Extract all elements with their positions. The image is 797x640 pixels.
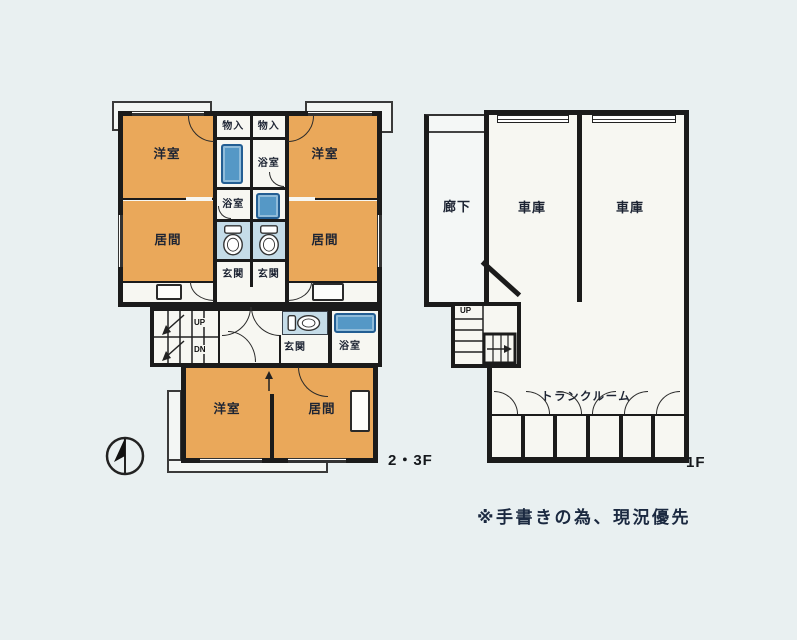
stairs-down-label: DN	[193, 345, 207, 354]
trunk-compartment	[525, 416, 554, 457]
toilet-cell	[250, 222, 286, 259]
bathtub-icon	[256, 193, 280, 219]
partition-wall	[577, 115, 582, 302]
partition-line	[279, 335, 281, 363]
entrance-row: 玄関 玄関	[217, 262, 285, 287]
trunk-compartment	[590, 416, 619, 457]
stairs-up-label: UP	[459, 306, 472, 315]
toilet-icon	[286, 313, 324, 333]
floor-label-2-3f: 2・3F	[388, 453, 433, 468]
window-mark	[200, 458, 262, 463]
trunk-room-compartments	[492, 414, 684, 457]
bath-row-2: 浴室	[217, 190, 285, 222]
entrance-cell: 玄関	[217, 262, 250, 287]
partition-wall	[328, 311, 332, 363]
garage-label: 車庫	[505, 201, 559, 214]
window-mark	[308, 111, 372, 116]
bathtub-icon	[334, 313, 376, 333]
toilet-row	[217, 222, 285, 262]
open-area-upper	[516, 302, 689, 369]
storage-cell: 物入	[250, 116, 286, 137]
entrance-label: 玄関	[258, 270, 280, 280]
window-mark	[288, 458, 346, 463]
toilet-icon	[257, 224, 281, 258]
stairs-icon	[154, 311, 218, 363]
closet-box	[350, 390, 370, 432]
entrance-label: 玄関	[284, 343, 306, 353]
trunk-compartment	[655, 416, 684, 457]
bathtub-icon	[221, 144, 243, 184]
garage-shutter	[497, 115, 569, 123]
door-arc	[269, 172, 284, 187]
garage-shutter	[592, 115, 676, 123]
service-column: 物入 物入 浴室 浴室	[213, 116, 289, 302]
stairs-up-label: UP	[193, 318, 206, 327]
door-opening	[289, 197, 315, 201]
door-arc	[218, 206, 231, 219]
room-label: 洋室	[303, 148, 347, 161]
window-mark	[118, 215, 123, 267]
bath-label: 浴室	[339, 342, 361, 352]
floorplan-canvas: 物入 物入 浴室 浴室	[0, 0, 797, 640]
storage-label: 物入	[258, 122, 280, 132]
trunk-compartment	[492, 416, 521, 457]
trunk-compartment	[557, 416, 586, 457]
room-label: 洋室	[205, 403, 249, 416]
toilet-cell	[217, 222, 250, 259]
door-opening	[186, 197, 212, 201]
storage-cell: 物入	[217, 116, 250, 137]
entrance-cell: 玄関	[250, 262, 286, 287]
room-label: 居間	[303, 234, 347, 247]
door-arrow-icon	[264, 371, 274, 393]
toilet-icon	[221, 224, 245, 258]
floor-label-1f: 1F	[686, 455, 706, 470]
closet-box	[156, 284, 182, 300]
room-label: 洋室	[145, 148, 189, 161]
garage-label: 車庫	[603, 201, 657, 214]
toilet-room	[282, 311, 328, 335]
partition-line	[218, 311, 220, 363]
trunk-room-label: トランクルーム	[541, 392, 631, 404]
room-label: 居間	[146, 234, 190, 247]
bath-cell: 浴室	[217, 190, 250, 219]
closet-box	[312, 283, 344, 301]
bathtub-cell	[250, 190, 286, 219]
bath-cell: 浴室	[250, 140, 286, 187]
corridor-label: 廊下	[430, 200, 484, 213]
handwritten-note: ※手書きの為、現況優先	[477, 503, 691, 528]
compass-icon	[103, 431, 147, 477]
bath-row-1: 浴室	[217, 140, 285, 190]
room-label: 居間	[300, 403, 344, 416]
trunk-compartment	[623, 416, 652, 457]
window-mark	[377, 215, 382, 267]
bath-label: 浴室	[258, 159, 280, 169]
threshold-line	[429, 131, 488, 133]
bathtub-cell	[217, 140, 250, 187]
storage-label: 物入	[222, 122, 244, 132]
entrance-label: 玄関	[222, 270, 244, 280]
storage-row: 物入 物入	[217, 116, 285, 140]
